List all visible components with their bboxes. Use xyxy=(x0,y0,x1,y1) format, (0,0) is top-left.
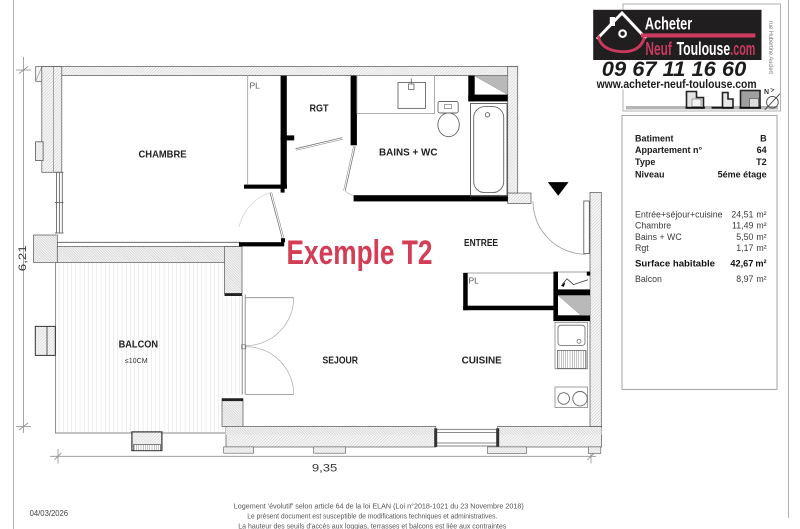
svg-text:m²: m² xyxy=(756,243,766,253)
svg-text:Toulouse: Toulouse xyxy=(677,38,731,59)
svg-text:CUISINE: CUISINE xyxy=(462,354,502,366)
svg-text:m²: m² xyxy=(756,221,766,231)
svg-text:m²: m² xyxy=(756,209,766,219)
svg-text:m²: m² xyxy=(756,232,766,242)
svg-text:PL: PL xyxy=(250,81,261,91)
svg-text:Bains + WC: Bains + WC xyxy=(635,232,682,242)
svg-text:5,50: 5,50 xyxy=(736,232,753,242)
svg-text:5éme étage: 5éme étage xyxy=(718,170,767,180)
svg-text:CHAMBRE: CHAMBRE xyxy=(139,148,187,160)
svg-text:N: N xyxy=(764,89,769,96)
svg-text:Le présent document est suscep: Le présent document est susceptible de m… xyxy=(247,513,497,520)
svg-text:m²: m² xyxy=(755,258,766,268)
svg-text:42,67: 42,67 xyxy=(730,258,753,268)
svg-text:rue Hubertine Auclert: rue Hubertine Auclert xyxy=(767,21,774,74)
svg-text:≤10CM: ≤10CM xyxy=(125,356,148,365)
svg-text:64: 64 xyxy=(757,145,767,155)
svg-text:B: B xyxy=(760,134,767,144)
svg-text:La hauteur des seuils d'accès: La hauteur des seuils d'accès aux loggia… xyxy=(238,523,506,529)
svg-text:SEJOUR: SEJOUR xyxy=(323,354,359,366)
svg-text:9,35: 9,35 xyxy=(312,463,337,475)
svg-text:PL: PL xyxy=(469,276,480,286)
svg-text:T2: T2 xyxy=(756,157,767,167)
svg-text:Acheter: Acheter xyxy=(645,13,692,33)
svg-text:m²: m² xyxy=(756,274,766,284)
svg-text:Logement 'évolutif' selon arti: Logement 'évolutif' selon article 64 de … xyxy=(234,503,524,511)
svg-text:Appartement n°: Appartement n° xyxy=(635,145,703,155)
svg-text:Batiment: Batiment xyxy=(635,134,674,144)
svg-text:www.acheter-neuf-toulouse.com: www.acheter-neuf-toulouse.com xyxy=(596,79,757,91)
svg-text:Chambre: Chambre xyxy=(635,221,671,231)
svg-text:BAINS + WC: BAINS + WC xyxy=(379,146,438,158)
svg-text:RGT: RGT xyxy=(310,102,329,114)
svg-text:24,51: 24,51 xyxy=(731,209,753,219)
svg-text:Neuf: Neuf xyxy=(645,38,672,59)
svg-text:1,17: 1,17 xyxy=(736,243,753,253)
svg-text:Niveau: Niveau xyxy=(635,170,665,180)
svg-text:BALCON: BALCON xyxy=(119,338,159,350)
svg-text:Type: Type xyxy=(635,157,655,167)
svg-text:8,97: 8,97 xyxy=(736,274,753,284)
svg-text:Balcon: Balcon xyxy=(635,274,662,284)
svg-text:Rgt: Rgt xyxy=(635,243,649,253)
svg-text:09 67 11 16 60: 09 67 11 16 60 xyxy=(602,58,747,81)
svg-text:Entrée+séjour+cuisine: Entrée+séjour+cuisine xyxy=(635,209,723,219)
svg-text:Exemple T2: Exemple T2 xyxy=(287,234,433,272)
svg-text:Surface habitable: Surface habitable xyxy=(635,258,715,269)
svg-text:.com: .com xyxy=(730,38,755,59)
svg-text:04/03/2026: 04/03/2026 xyxy=(30,508,69,518)
svg-text:ENTREE: ENTREE xyxy=(464,237,498,249)
svg-text:11,49: 11,49 xyxy=(732,221,753,231)
svg-text:6,21: 6,21 xyxy=(17,245,29,271)
